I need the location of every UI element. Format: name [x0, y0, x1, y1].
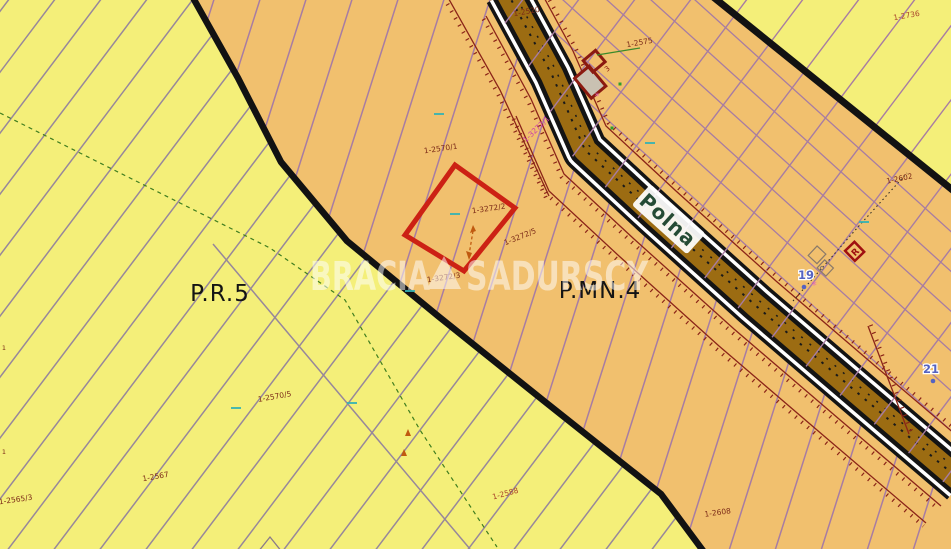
watermark: BRACIA SADURSCY — [310, 254, 649, 300]
watermark-brand-right: SADURSCY — [466, 254, 649, 300]
pink-symbol: * — [595, 92, 600, 102]
address-point — [802, 285, 807, 290]
cadastral-map-canvas[interactable]: 3R 1921** 1-25201-25751-27361-26021-2570… — [0, 0, 951, 549]
pink-symbol: * — [811, 279, 817, 292]
map-viewport[interactable]: 3R 1921** 1-25201-25751-27361-26021-2570… — [0, 0, 951, 549]
green-point — [619, 83, 622, 86]
watermark-brand-left: BRACIA — [310, 254, 430, 300]
parcel-number-label: 1 — [2, 448, 6, 456]
parcel-number-label: 1 — [2, 344, 6, 352]
address-number-marker: 21 — [923, 362, 939, 376]
zone-label-pr5: P.R.5 — [190, 281, 250, 307]
green-point — [611, 127, 614, 130]
address-point — [931, 379, 936, 384]
